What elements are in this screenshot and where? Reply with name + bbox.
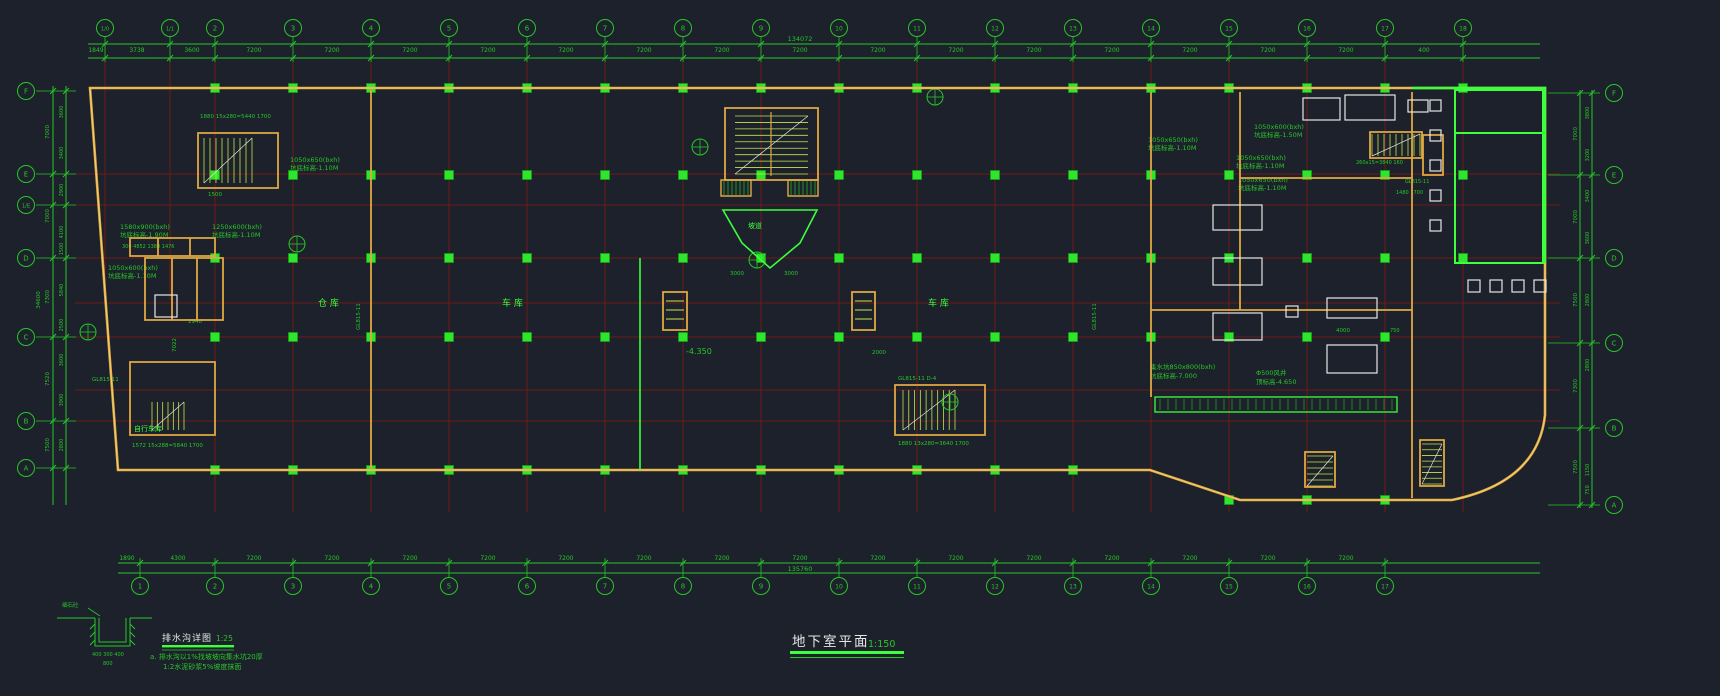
annotation-text: 1572 15x288=5840 1700 [132,443,203,449]
column-marker [679,254,688,263]
dimension-text: 7200 [558,47,573,54]
left-axis-bubble-label: D [23,254,28,262]
dimension-text: 7200 [1182,555,1197,562]
annotation-text: 1050x600(bxh) [108,264,158,272]
top-axis-bubble-label: 1/1 [166,26,174,32]
column-marker [1381,333,1390,342]
column-marker [289,333,298,342]
dimension-text: 7500 [1573,293,1579,307]
dimension-text: 400 [1418,47,1430,54]
right-axis-bubble-label: C [1612,339,1617,347]
dimension-text: 7500 [1573,460,1579,474]
annotation-text: 2000 [872,350,886,356]
top-axis-bubble-label: 9 [759,24,763,32]
detail-scale: 1:25 [216,634,233,643]
column-marker [601,171,610,180]
annotation-text: 3000 [730,271,744,277]
top-axis-bubble-label: 17 [1381,25,1389,32]
top-axis-bubble-label: 15 [1225,25,1233,32]
column-marker [913,333,922,342]
annotation-text: GL815-11 [356,303,362,330]
column-marker [1069,254,1078,263]
dimension-text: 3900 [59,394,65,407]
top-axis-bubble-label: 8 [681,24,685,32]
bottom-axis-bubble-label: 14 [1147,583,1155,590]
column-marker [1069,171,1078,180]
annotation-text: 坑底标高-7.000 [1150,371,1197,380]
column-marker [445,333,454,342]
dimension-text: 7200 [1260,47,1275,54]
annotation-text: 1480 1700 [1396,190,1423,196]
bottom-axis-bubble-label: 1 [138,582,142,590]
bottom-axis-bubble-label: 13 [1069,583,1077,590]
top-axis-bubble-label: 18 [1459,25,1467,32]
title-underline-thick [790,651,904,654]
top-axis-bubble-label: 3 [291,24,295,32]
dimension-text: 7500 [45,438,51,452]
dimension-text: 7200 [636,555,651,562]
dimension-text: 7200 [870,47,885,54]
detail-title: 排水沟详图 [162,632,212,644]
column-marker [757,171,766,180]
column-marker [523,254,532,263]
top-axis-bubble-label: 4 [369,24,374,32]
dimension-text: 7200 [324,555,339,562]
dimension-text: 1890 [119,555,134,562]
annotation-text: 750 [1390,328,1400,334]
annotation-text: 集水坑850x800(bxh) [1150,362,1215,371]
annotation-text: 1050x650(bxh) [1148,136,1198,144]
bottom-axis-bubble-label: 4 [369,582,374,590]
dimension-text: 7200 [948,555,963,562]
dimension-text: 2800 [59,439,65,452]
annotation-text: 1880 15x280=5440 1700 [200,114,271,120]
dimension-text: 7200 [324,47,339,54]
dimension-text: 7200 [1104,47,1119,54]
dimension-text: 7200 [1338,47,1353,54]
column-marker [523,333,532,342]
bottom-axis-bubble-label: 3 [291,582,295,590]
column-marker [211,333,220,342]
dimension-text: 7200 [870,555,885,562]
bottom-axis-bubble-label: 5 [447,582,451,590]
bottom-axis-bubble-label: 17 [1381,583,1389,590]
cad-canvas[interactable]: 1/01/12345678910111213141516171818493738… [0,0,1720,696]
bottom-axis-bubble-label: 11 [913,583,921,590]
dimension-text: 7000 [1573,210,1579,224]
dimension-text: 2800 [1585,294,1591,307]
dimension-text: 7200 [1260,555,1275,562]
dimension-text: 2900 [59,184,65,197]
column-marker [601,254,610,263]
dimension-text: 3600 [184,47,199,54]
annotation-text: 1580x900(bxh) [120,223,170,231]
annotation-text: 7022 [172,338,178,352]
annotation-text: 1250x600(bxh) [212,223,262,231]
dimension-text: 7200 [480,555,495,562]
dimension-text: 7200 [402,47,417,54]
column-marker [679,333,688,342]
dimension-text: 5840 [59,284,65,297]
column-marker [601,333,610,342]
bottom-axis-bubble-label: 15 [1225,583,1233,590]
dimension-text: 7200 [636,47,651,54]
top-axis-bubble-label: 2 [213,24,217,32]
trench-dim-1: 400 300 400 [92,652,124,658]
column-marker [1381,254,1390,263]
dimension-text: 1500 [59,243,65,256]
annotation-text: 坑底标高-1.10M [1238,183,1286,192]
bottom-axis-bubble-label: 10 [835,583,843,590]
left-axis-bubble-label: A [24,464,29,472]
dimension-text: 7000 [45,125,51,139]
dimension-text: 7200 [1026,47,1041,54]
basement-plan-drawing: 1/01/12345678910111213141516171818493738… [0,0,1720,696]
top-axis-bubble-label: 10 [835,25,843,32]
bottom-axis-bubble-label: 8 [681,582,685,590]
dimension-text: 3600 [59,106,65,119]
top-axis-bubble-label: 7 [603,24,607,32]
column-marker [913,171,922,180]
annotation-text: 坑底标高-1.10M [108,271,156,280]
room-label: 自行车库 [134,424,162,433]
column-marker [991,333,1000,342]
dimension-text: 3200 [1585,149,1591,162]
annotation-text: 1880 13x280=3640 1700 [898,441,969,447]
annotation-text: 坑底标高-1.10M [1148,143,1196,152]
column-marker [757,333,766,342]
dimension-text: 7000 [1573,127,1579,141]
top-axis-bubble-label: 12 [991,25,999,32]
column-marker [289,254,298,263]
bottom-axis-bubble-label: 9 [759,582,763,590]
right-axis-bubble-label: A [1612,501,1617,509]
right-axis-bubble-label: F [1612,89,1616,97]
dimension-text: 1849 [88,47,103,54]
column-marker [913,254,922,263]
column-marker [1069,333,1078,342]
dimension-text: 3738 [129,47,144,54]
dimension-text: 7200 [792,555,807,562]
column-marker [1225,171,1234,180]
dimension-text: 7300 [45,290,51,304]
dimension-text: 3600 [1585,232,1591,245]
dimension-text: 7200 [246,555,261,562]
annotation-text: 顶标高-4.650 [1256,377,1296,386]
annotation-text: 坑底标高-1.50M [1254,130,1302,139]
annotation-text: 3000 [784,271,798,277]
dimension-text: 7200 [480,47,495,54]
right-axis-bubble-label: B [1612,424,1617,432]
dimension-text: 7200 [1026,555,1041,562]
detail-note-2: 1:2水泥砂浆5%坡度抹面 [163,662,241,671]
column-marker [523,171,532,180]
left-axis-bubble-label: 1/E [22,203,30,209]
dimension-text: 1150 [1585,464,1591,477]
annotation-text: 1050x600(bxh) [1254,123,1304,131]
dimension-text: 7200 [246,47,261,54]
column-marker [835,171,844,180]
dimension-text: 7300 [1573,379,1579,393]
column-marker [991,254,1000,263]
column-marker [445,254,454,263]
bottom-axis-bubble-label: 2 [213,582,217,590]
right-axis-bubble-label: E [1612,171,1616,179]
dimension-text: 7200 [1104,555,1119,562]
dimension-total-top: 134072 [788,35,813,43]
plan-title: 地下室平面 [792,633,870,650]
dimension-text: 4300 [170,555,185,562]
annotation-text: -4.350 [686,347,712,356]
bottom-axis-bubble-label: 6 [525,582,530,590]
dimension-text: 2500 [59,319,65,332]
column-marker [211,171,220,180]
top-axis-bubble-label: 13 [1069,25,1077,32]
bottom-axis-bubble-label: 7 [603,582,607,590]
annotation-text: GL815-11 [1092,303,1098,330]
drawing-background [0,0,1720,696]
detail-note-1: a. 排水沟以1%找坡坡向集水坑20厚 [150,652,263,661]
dimension-text: 750 [1585,485,1591,495]
detail-underline-thick [162,645,234,647]
annotation-text: GL815-11 D-4 [898,376,937,382]
right-axis-bubble-label: D [1611,254,1616,262]
dimension-text: 2800 [1585,359,1591,372]
room-label: 车 库 [928,297,949,309]
column-marker [1459,254,1468,263]
annotation-text: 坑底标高-1.10M [1236,161,1284,170]
annotation-text: 坑底标高-1.10M [212,230,260,239]
room-label: 坡道 [748,221,762,230]
annotation-text: GL815-11 [92,377,119,383]
trench-dim-2: 800 [103,661,113,667]
dimension-text: 7200 [402,555,417,562]
room-label: 车 库 [502,297,523,309]
plan-scale: 1:150 [868,639,895,650]
room-label: 仓 库 [318,297,339,309]
left-axis-bubble-label: B [24,417,29,425]
top-axis-bubble-label: 16 [1303,25,1311,32]
dimension-text: 7200 [1182,47,1197,54]
top-axis-bubble-label: 6 [525,24,530,32]
column-marker [1303,333,1312,342]
dimension-text: 7200 [1338,555,1353,562]
dimension-text: 7000 [45,209,51,223]
annotation-text: 1500 [208,192,222,198]
annotation-text: 1050x650(bxh) [290,156,340,164]
dimension-text: 7200 [558,555,573,562]
column-marker [445,171,454,180]
trench-material-label: 细石砼 [62,601,79,609]
column-marker [1303,254,1312,263]
annotation-text: 1050x650(bxh) [1236,154,1286,162]
column-marker [679,171,688,180]
annotation-text: 260x15=3840 160 [1356,160,1403,166]
annotation-text: 4000 [1336,328,1350,334]
bottom-axis-bubble-label: 12 [991,583,999,590]
dimension-total-bottom: 135760 [788,565,813,573]
dimension-text: 7200 [714,555,729,562]
annotation-text: Φ500风井 [1256,368,1287,377]
top-axis-bubble-label: 1/0 [101,26,109,32]
dimension-text: 3400 [1585,190,1591,203]
column-marker [835,333,844,342]
dimension-text: 3800 [1585,107,1591,120]
dimension-text: 3400 [59,147,65,160]
column-marker [991,171,1000,180]
left-axis-bubble-label: C [24,333,29,341]
left-axis-bubble-label: E [24,170,28,178]
top-axis-bubble-label: 11 [913,25,921,32]
dimension-text: 7200 [792,47,807,54]
dimension-text: 7520 [45,372,51,386]
dimension-text: 3600 [59,354,65,367]
dimension-text: 7200 [714,47,729,54]
left-axis-bubble-label: F [24,87,28,95]
annotation-text: GL815-11 [1405,179,1429,185]
annotation-text: 坑底标高-1.10M [290,163,338,172]
bottom-axis-bubble-label: 16 [1303,583,1311,590]
top-axis-bubble-label: 14 [1147,25,1155,32]
dimension-text: 4100 [59,226,65,239]
dimension-total-left: 34600 [36,291,42,309]
column-marker [835,254,844,263]
dimension-text: 7200 [948,47,963,54]
column-marker [1459,171,1468,180]
top-axis-bubble-label: 5 [447,24,451,32]
